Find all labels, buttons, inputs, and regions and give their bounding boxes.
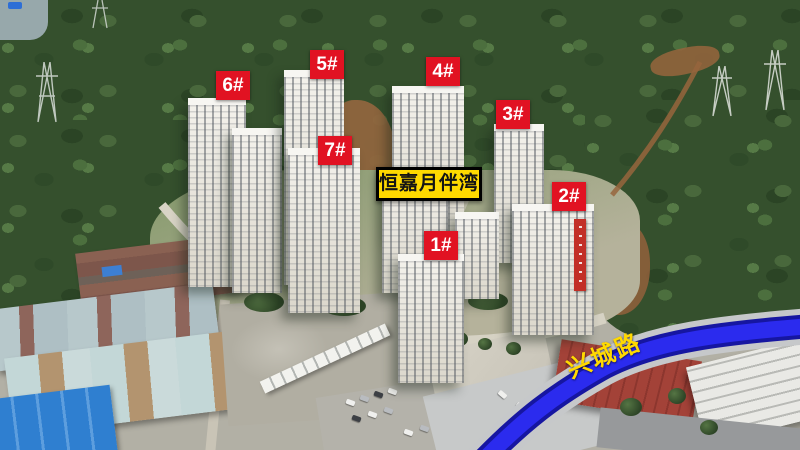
building-marker-7: 7# — [318, 136, 352, 165]
building-marker-1: 1# — [424, 231, 458, 260]
building-marker-2: 2# — [552, 182, 586, 211]
tower-1 — [398, 254, 464, 383]
tower-7 — [288, 148, 360, 313]
aerial-photo: 1# 2# 3# 4# 5# 6# 7# 恒嘉月伴湾 兴城路 — [0, 0, 800, 450]
tree — [700, 420, 718, 435]
tree — [620, 398, 642, 416]
project-name-label: 恒嘉月伴湾 — [376, 167, 482, 201]
tower-6b — [232, 128, 282, 293]
tree — [506, 342, 521, 355]
tree — [478, 338, 492, 350]
building-marker-3: 3# — [496, 100, 530, 129]
blue-vehicle-dot — [8, 2, 22, 9]
building-marker-5: 5# — [310, 50, 344, 79]
building-marker-6: 6# — [216, 71, 250, 100]
tower-2 — [512, 204, 594, 335]
tree — [545, 392, 565, 409]
building-marker-4: 4# — [426, 57, 460, 86]
tree — [668, 388, 686, 404]
courtyard-green — [244, 292, 284, 312]
building-banner — [574, 219, 586, 291]
